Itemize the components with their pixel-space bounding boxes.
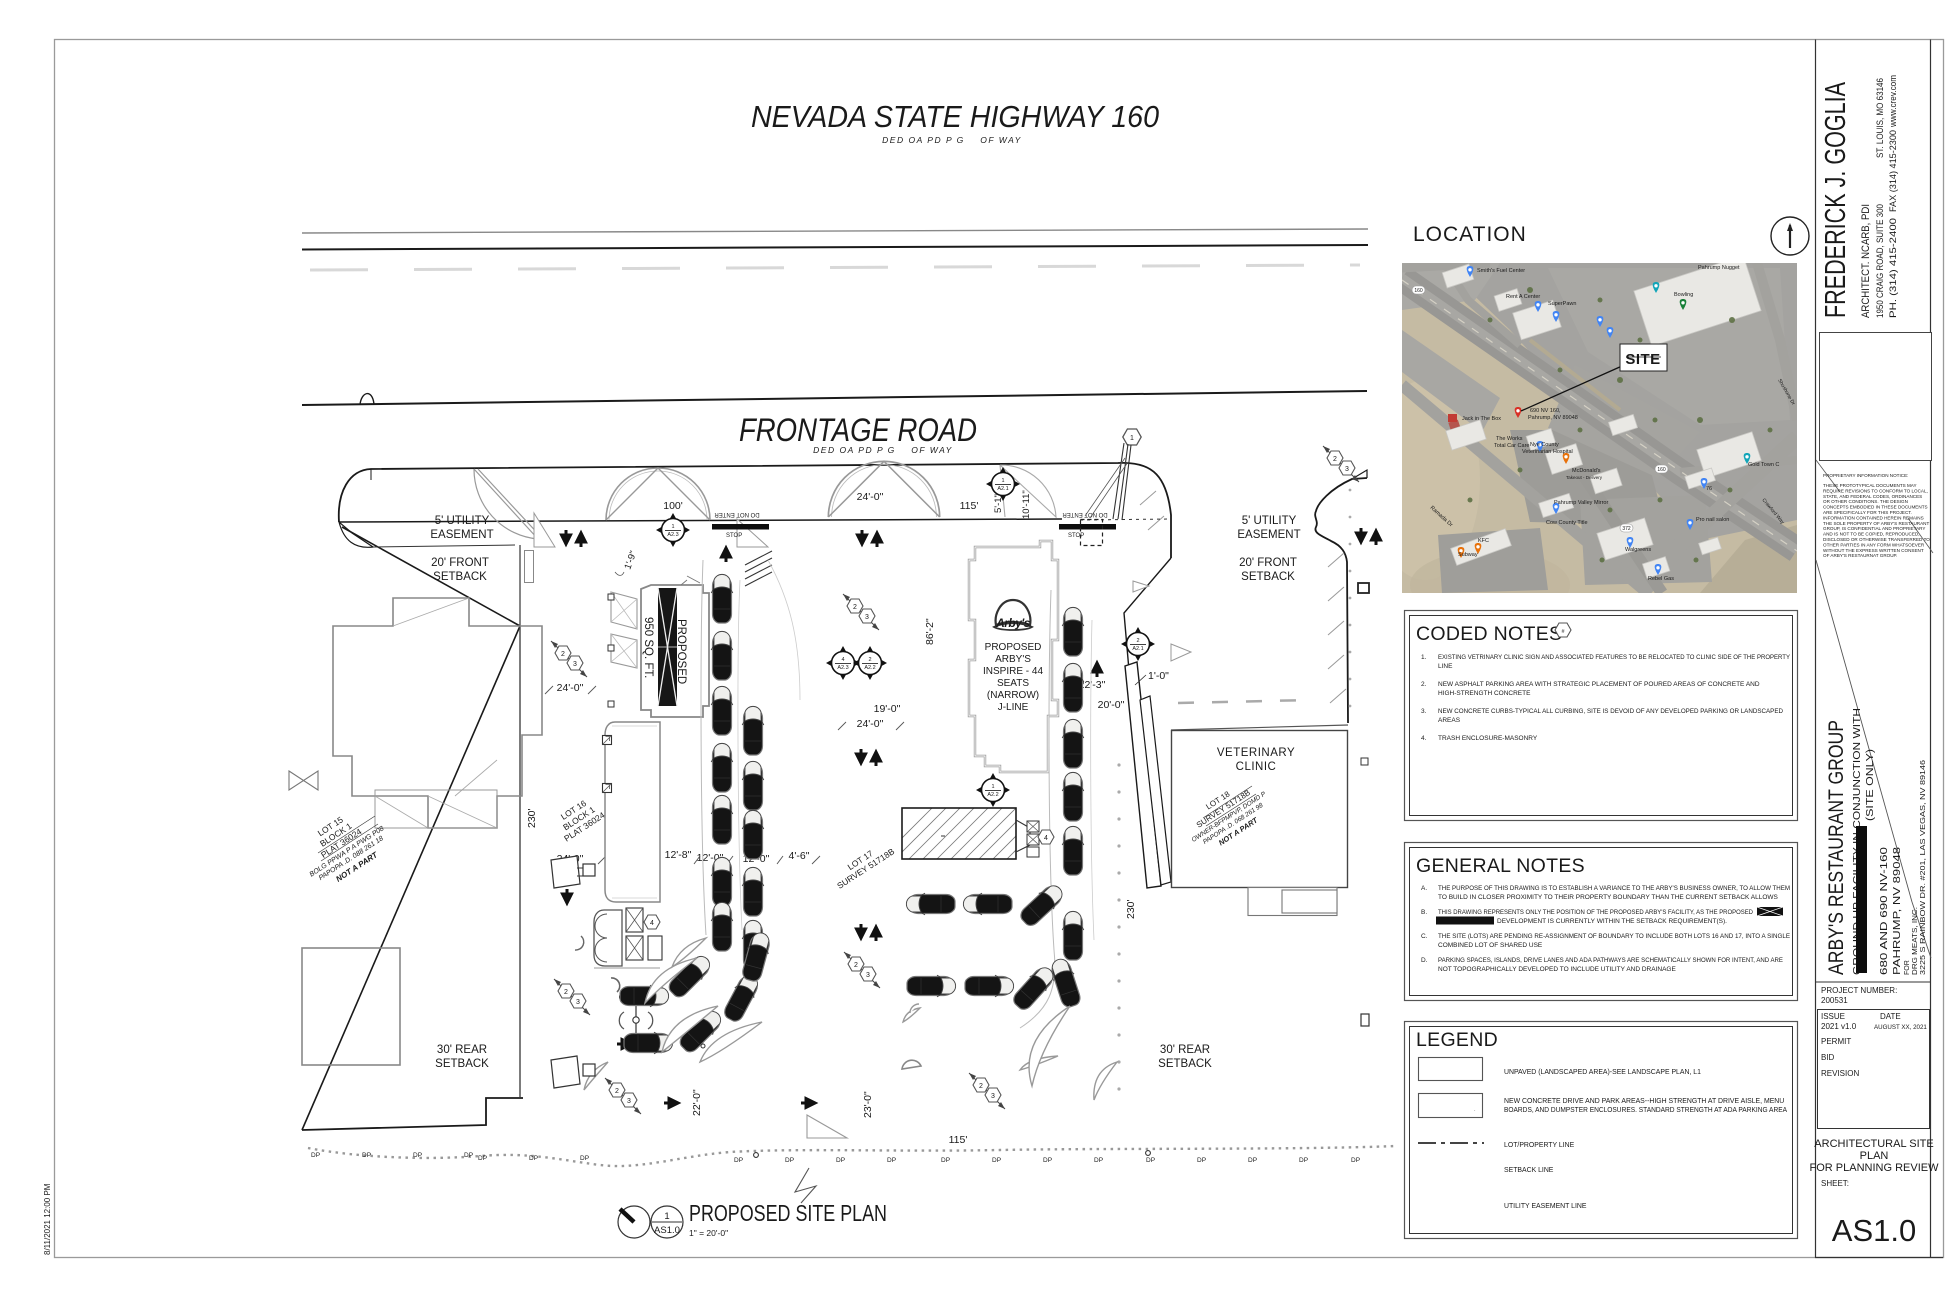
svg-text:GENERAL NOTES: GENERAL NOTES (1416, 855, 1585, 877)
svg-text:24'-0": 24'-0" (557, 682, 584, 694)
svg-text:Smith's Fuel Center: Smith's Fuel Center (1477, 268, 1525, 274)
svg-text:DP: DP (1351, 1157, 1360, 1164)
svg-text:ARCHITECTURAL SITE: ARCHITECTURAL SITE (1814, 1138, 1933, 1150)
svg-text:DED OA PD P G OF WAY: DED OA PD P G OF WAY (813, 445, 953, 455)
svg-text:STOP: STOP (1068, 533, 1084, 539)
svg-text:2021 v1.0: 2021 v1.0 (1821, 1022, 1857, 1031)
svg-text:CODED NOTES: CODED NOTES (1416, 623, 1562, 645)
svg-text:A2.1: A2.1 (997, 486, 1008, 492)
svg-text:Walgreens: Walgreens (1625, 547, 1651, 553)
svg-text:J-LINE: J-LINE (998, 702, 1029, 713)
svg-text:B.: B. (1421, 909, 1427, 916)
svg-text:NEW CONCRETE CURBS-TYPICAL ALL: NEW CONCRETE CURBS-TYPICAL ALL CURBING, … (1438, 708, 1783, 715)
svg-text:REVISION: REVISION (1821, 1069, 1859, 1078)
svg-text:THE PURPOSE OF THIS DRAWING IS: THE PURPOSE OF THIS DRAWING IS TO ESTABL… (1438, 885, 1790, 892)
svg-text:THESE PROTOTYPICAL DOCUMENTS M: THESE PROTOTYPICAL DOCUMENTS MAY (1823, 483, 1917, 488)
svg-text:20'-0": 20'-0" (1098, 699, 1125, 711)
svg-text:UTILITY EASEMENT LINE: UTILITY EASEMENT LINE (1504, 1203, 1587, 1210)
svg-text:DP: DP (836, 1157, 845, 1164)
svg-text:Rebel Gas: Rebel Gas (1648, 576, 1674, 582)
svg-text:GROUP, IS CONFIDENTIAL AND PRO: GROUP, IS CONFIDENTIAL AND PROPRIETARY (1823, 526, 1925, 531)
svg-text:(SITE ONLY): (SITE ONLY) (1864, 749, 1876, 821)
svg-text:SETBACK: SETBACK (435, 1058, 489, 1070)
svg-text:NOT TOPOGRAPHICALLY DEVELOPED: NOT TOPOGRAPHICALLY DEVELOPED TO INCLUDE… (1438, 966, 1676, 973)
svg-text:4'-6": 4'-6" (789, 850, 810, 862)
svg-text:OTHER PARTIES IN ANY FORM WHAT: OTHER PARTIES IN ANY FORM WHATSOEVER (1823, 542, 1925, 547)
svg-text:A2.2: A2.2 (864, 665, 875, 671)
svg-text:4: 4 (650, 920, 654, 927)
svg-text:1'-0": 1'-0" (1148, 670, 1169, 682)
svg-text:NEW CONCRETE DRIVE AND PARK AR: NEW CONCRETE DRIVE AND PARK AREAS--HIGH … (1504, 1098, 1784, 1105)
svg-text:www.crev.com: www.crev.com (1888, 75, 1899, 128)
svg-text:LOT/PROPERTY LINE: LOT/PROPERTY LINE (1504, 1142, 1575, 1149)
svg-text:THIS DRAWING REPRESENTS ONLY T: THIS DRAWING REPRESENTS ONLY THE POSITIO… (1438, 909, 1753, 916)
svg-text:DP: DP (1146, 1157, 1155, 1164)
svg-text:PH. (314) 415-2400: PH. (314) 415-2400 (1888, 218, 1899, 318)
svg-text:Bowling: Bowling (1674, 292, 1693, 298)
svg-text:SHEET:: SHEET: (1821, 1179, 1849, 1188)
svg-text:DP: DP (478, 1155, 487, 1162)
svg-text:THE SOLE PROPERTY OF ARBY'S RE: THE SOLE PROPERTY OF ARBY'S RESTAURANT (1823, 521, 1929, 526)
svg-text:10'-11": 10'-11" (1021, 490, 1032, 519)
svg-text:22'-0": 22'-0" (691, 1089, 703, 1116)
svg-text:5'-1": 5'-1" (993, 494, 1004, 513)
svg-text:OR OTHER CONDITIONS. THE DESI: OR OTHER CONDITIONS. THE DESIGN (1823, 499, 1908, 504)
svg-text:SuperPawn: SuperPawn (1548, 301, 1576, 307)
svg-text:PROJECT NUMBER:: PROJECT NUMBER: (1821, 986, 1897, 995)
svg-text:The Works: The Works (1496, 436, 1523, 442)
svg-text:1: 1 (671, 524, 674, 530)
svg-text:24'-0": 24'-0" (857, 718, 884, 730)
svg-text:DO NOT ENTER: DO NOT ENTER (714, 511, 760, 517)
svg-text:EASEMENT: EASEMENT (1237, 529, 1300, 541)
svg-text:30' REAR: 30' REAR (1160, 1044, 1210, 1056)
svg-text:4: 4 (841, 657, 844, 663)
svg-text:AUGUST XX, 2021: AUGUST XX, 2021 (1874, 1024, 1927, 1031)
svg-text:CONCEPTS EMBODIED IN THESE DOC: CONCEPTS EMBODIED IN THESE DOCUMENTS (1823, 505, 1928, 510)
svg-text:230': 230' (526, 808, 538, 828)
svg-text:PROPOSED SITE PLAN: PROPOSED SITE PLAN (689, 1200, 887, 1226)
svg-text:NEW ASPHALT PARKING AREA WITH: NEW ASPHALT PARKING AREA WITH STRATEGIC … (1438, 681, 1760, 688)
svg-text:1: 1 (991, 784, 994, 790)
svg-text:Cow County Title: Cow County Title (1546, 520, 1588, 526)
svg-text:20' FRONT: 20' FRONT (1239, 557, 1297, 569)
svg-text:LEGEND: LEGEND (1416, 1029, 1498, 1051)
svg-text:AREAS: AREAS (1438, 717, 1461, 724)
svg-text:372: 372 (1622, 526, 1631, 532)
svg-text:19'-0": 19'-0" (874, 703, 901, 715)
svg-text:Jack in The Box: Jack in The Box (1462, 416, 1501, 422)
svg-text:115': 115' (949, 1134, 968, 1146)
svg-text:DED OA PD P G OF WAY: DED OA PD P G OF WAY (882, 135, 1022, 145)
svg-text:ARBY'S: ARBY'S (995, 654, 1031, 665)
svg-text:Subway: Subway (1458, 552, 1478, 558)
svg-text:ARBY'S RESTAURANT GROUP: ARBY'S RESTAURANT GROUP (1825, 720, 1848, 975)
svg-text:FRONTAGE ROAD: FRONTAGE ROAD (739, 412, 977, 448)
svg-text:76: 76 (1706, 486, 1712, 492)
svg-text:EXISTING VETRINARY CLINIC SIGN: EXISTING VETRINARY CLINIC SIGN AND ASSOC… (1438, 654, 1791, 661)
svg-text:ARE SPECIFICALLY FOR THIS PROJ: ARE SPECIFICALLY FOR THIS PROJECT. (1823, 510, 1912, 515)
svg-text:DO NOT ENTER: DO NOT ENTER (1062, 511, 1108, 517)
svg-text:A2.2: A2.2 (987, 792, 998, 798)
svg-text:160: 160 (1657, 467, 1666, 473)
svg-text:950 SQ. FT.: 950 SQ. FT. (642, 617, 654, 678)
svg-text:20' FRONT: 20' FRONT (431, 557, 489, 569)
svg-text:DP: DP (362, 1152, 371, 1159)
svg-text:McDonald's: McDonald's (1572, 468, 1601, 474)
svg-text:24'-0": 24'-0" (857, 491, 884, 503)
svg-text:Arby's: Arby's (995, 616, 1031, 630)
svg-text:Pahrump Nugget: Pahrump Nugget (1698, 265, 1740, 271)
svg-text:200531: 200531 (1821, 996, 1848, 1005)
svg-text:THE SITE (LOTS) ARE PENDING RE: THE SITE (LOTS) ARE PENDING RE-ASSIGNMEN… (1438, 933, 1791, 940)
svg-text:SETBACK: SETBACK (1158, 1058, 1212, 1070)
svg-text:FOR PLANNING REVIEW: FOR PLANNING REVIEW (1810, 1162, 1940, 1174)
svg-text:1: 1 (664, 1211, 669, 1222)
svg-text:230': 230' (1125, 899, 1137, 919)
svg-text:8/11/2021 12:00 PM: 8/11/2021 12:00 PM (43, 1183, 52, 1255)
svg-text:DP: DP (1043, 1157, 1052, 1164)
svg-text:115': 115' (960, 500, 979, 512)
svg-text:AS1.0: AS1.0 (1832, 1213, 1916, 1248)
svg-text:D.: D. (1421, 957, 1428, 964)
svg-text:3.: 3. (1421, 708, 1427, 715)
svg-text:3225 S RAINBOW DR. #201, LAS V: 3225 S RAINBOW DR. #201, LAS VEGAS, NV 8… (1918, 760, 1927, 975)
svg-text:ARCHITECT. NCARB, PDI: ARCHITECT. NCARB, PDI (1860, 204, 1872, 318)
svg-text:Gold Town C: Gold Town C (1748, 462, 1779, 468)
svg-text:LINE: LINE (1438, 663, 1453, 670)
svg-text:OF ARBY'S RESTAURNAT GROUP.: OF ARBY'S RESTAURNAT GROUP. (1823, 553, 1897, 558)
svg-text:HIGH-STRENGTH CONCRETE: HIGH-STRENGTH CONCRETE (1438, 690, 1531, 697)
svg-text:STOP: STOP (726, 533, 742, 539)
svg-text:PROPOSED: PROPOSED (985, 642, 1042, 653)
svg-text:A2.3: A2.3 (667, 532, 678, 538)
svg-text:160: 160 (1414, 288, 1423, 294)
svg-text:DP: DP (785, 1157, 794, 1164)
svg-text:680 AND 690 NV-160: 680 AND 690 NV-160 (1878, 847, 1890, 975)
svg-text:DP: DP (734, 1157, 743, 1164)
svg-text:1950 CRAIG ROAD, SUITE 300: 1950 CRAIG ROAD, SUITE 300 (1875, 204, 1886, 318)
svg-text:Pahrump Valley Mirror: Pahrump Valley Mirror (1554, 500, 1608, 506)
svg-text:Takeout - Delivery: Takeout - Delivery (1566, 475, 1603, 480)
svg-text:Pro nail salon: Pro nail salon (1696, 517, 1729, 523)
svg-text:CLINIC: CLINIC (1236, 761, 1277, 773)
svg-text:SETBACK: SETBACK (433, 571, 487, 583)
svg-text:5' UTILITY: 5' UTILITY (1242, 515, 1297, 527)
svg-text:PROPOSED: PROPOSED (675, 619, 687, 684)
svg-text:SEATS: SEATS (997, 678, 1029, 689)
svg-text:INFORMATION CONTAINED HEREIN R: INFORMATION CONTAINED HEREIN REMAINS (1823, 515, 1924, 520)
svg-text:DP: DP (413, 1152, 422, 1159)
svg-text:DP: DP (464, 1152, 473, 1159)
svg-text:FAX (314) 415-2300: FAX (314) 415-2300 (1888, 130, 1899, 212)
svg-text:TRASH ENCLOSURE-MASONRY: TRASH ENCLOSURE-MASONRY (1438, 735, 1538, 742)
svg-text:A.: A. (1421, 885, 1427, 892)
svg-text:1: 1 (1001, 478, 1004, 484)
svg-text:PERMIT: PERMIT (1821, 1037, 1851, 1046)
svg-text:LOCATION: LOCATION (1413, 223, 1527, 246)
svg-text:DP: DP (580, 1155, 589, 1162)
svg-text:DP: DP (887, 1157, 896, 1164)
svg-text:FREDERICK J. GOGLIA: FREDERICK J. GOGLIA (1820, 82, 1852, 318)
svg-text:DP: DP (311, 1152, 320, 1159)
svg-text:A2.3: A2.3 (837, 665, 848, 671)
svg-text:12'-8": 12'-8" (665, 849, 692, 861)
svg-text:(NARROW): (NARROW) (987, 690, 1039, 701)
svg-text:SETBACK LINE: SETBACK LINE (1504, 1167, 1554, 1174)
svg-text:SETBACK: SETBACK (1241, 571, 1295, 583)
svg-text:AS1.0: AS1.0 (654, 1225, 680, 1236)
svg-text:NEVADA STATE HIGHWAY 160: NEVADA STATE HIGHWAY 160 (751, 99, 1159, 134)
svg-text:KFC: KFC (1478, 538, 1489, 544)
svg-text:DATE: DATE (1880, 1012, 1901, 1021)
svg-text:STATE, AND FEDERAL CODES, ORDI: STATE, AND FEDERAL CODES, ORDINANCES (1823, 494, 1922, 499)
svg-text:4: 4 (1044, 835, 1048, 842)
svg-text:23'-0": 23'-0" (862, 1091, 874, 1118)
svg-text:PAHRUMP, NV 89048: PAHRUMP, NV 89048 (1891, 847, 1903, 975)
svg-text:4.: 4. (1421, 735, 1427, 742)
svg-text:Rent A Center: Rent A Center (1506, 294, 1540, 300)
svg-text:Nye County: Nye County (1530, 442, 1559, 448)
svg-text:DP: DP (1094, 1157, 1103, 1164)
svg-text:PLAN: PLAN (1860, 1150, 1889, 1162)
svg-text:REQUIRE REVISIONS TO CONFORM T: REQUIRE REVISIONS TO CONFORM TO LOCAL, (1823, 488, 1928, 493)
svg-text:DP: DP (941, 1157, 950, 1164)
svg-text:WITHOUT THE EXPRESS WRITTEN CO: WITHOUT THE EXPRESS WRITTEN CONSENT (1823, 548, 1924, 553)
svg-text:1.: 1. (1421, 654, 1427, 661)
svg-text:SITE: SITE (1625, 351, 1660, 368)
svg-text:30' REAR: 30' REAR (437, 1044, 487, 1056)
svg-text:BID: BID (1821, 1053, 1835, 1062)
svg-text:COMBINED LOT OF SHARED USE: COMBINED LOT OF SHARED USE (1438, 942, 1543, 949)
svg-text:2: 2 (868, 657, 871, 663)
svg-text:Pahrump, NV 89048: Pahrump, NV 89048 (1528, 415, 1578, 421)
svg-text:DP: DP (1299, 1157, 1308, 1164)
svg-text:1" = 20'-0": 1" = 20'-0" (689, 1228, 728, 1238)
svg-text:5' UTILITY: 5' UTILITY (435, 515, 490, 527)
svg-text:PROPRIETARY INFORMATION NOTICE: PROPRIETARY INFORMATION NOTICE: (1823, 473, 1908, 478)
svg-text:86'-2": 86'-2" (924, 618, 936, 645)
svg-text:100': 100' (663, 500, 683, 512)
svg-text:DP: DP (529, 1155, 538, 1162)
svg-text:DISCLOSED OR OTHERWISE TRANSFE: DISCLOSED OR OTHERWISE TRANSFERRED TO (1823, 537, 1930, 542)
svg-text:ISSUE: ISSUE (1821, 1012, 1845, 1021)
svg-text:DP: DP (1248, 1157, 1257, 1164)
svg-text:2.: 2. (1421, 681, 1427, 688)
svg-text:UNPAVED (LANDSCAPED AREA)-SEE: UNPAVED (LANDSCAPED AREA)-SEE LANDSCAPE … (1504, 1069, 1701, 1076)
svg-text:PARKING SPACES, ISLANDS, DRIVE: PARKING SPACES, ISLANDS, DRIVE LANES AND… (1438, 957, 1784, 964)
svg-text:DP: DP (992, 1157, 1001, 1164)
svg-text:AND IS NOT TO BE COPIED, REPRO: AND IS NOT TO BE COPIED, REPRODUCED, (1823, 532, 1920, 537)
svg-text:EASEMENT: EASEMENT (430, 529, 493, 541)
svg-text:BOARDS, AND DUMPSTER ENCLOSURE: BOARDS, AND DUMPSTER ENCLOSURES. STANDAR… (1504, 1107, 1787, 1114)
svg-text:2: 2 (1136, 638, 1139, 644)
svg-text:690 NV 160,: 690 NV 160, (1530, 408, 1561, 414)
svg-text:VETERINARY: VETERINARY (1217, 747, 1295, 759)
svg-text:A2.1: A2.1 (1132, 646, 1143, 652)
svg-text:INSPIRE - 44: INSPIRE - 44 (983, 666, 1043, 677)
svg-text:ST. LOUIS, MO 63146: ST. LOUIS, MO 63146 (1875, 78, 1886, 158)
svg-text:DP: DP (1197, 1157, 1206, 1164)
svg-text:1: 1 (1130, 435, 1134, 442)
svg-text:Veterinarian Hospital: Veterinarian Hospital (1522, 449, 1573, 455)
svg-text:C.: C. (1421, 933, 1428, 940)
svg-text:DEVELOPMENT IS CURRENTLY WITHI: DEVELOPMENT IS CURRENTLY WITHIN THE SETB… (1497, 918, 1727, 925)
svg-text:TO BUILD IN CLOSER PROXIMITY T: TO BUILD IN CLOSER PROXIMITY TO THEIR PR… (1438, 894, 1779, 901)
